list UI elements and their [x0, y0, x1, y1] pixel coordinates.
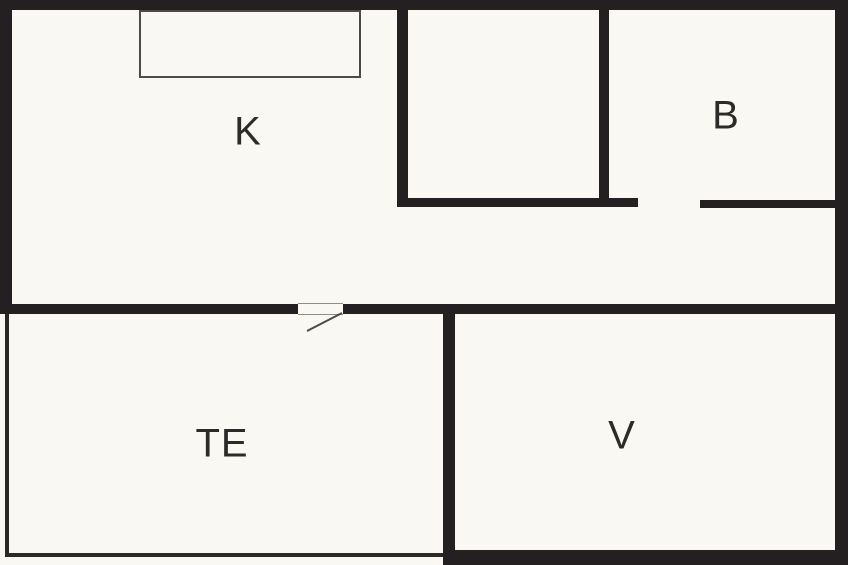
wall-te-v-divider	[443, 304, 455, 565]
wall-outer-left	[0, 0, 12, 314]
kitchen-counter	[139, 10, 361, 78]
door-swing-icon	[298, 308, 350, 338]
wall-midroom-right	[599, 10, 609, 207]
wall-terrace-left	[5, 314, 9, 557]
room-label-b: B	[712, 94, 740, 139]
room-label-k: K	[234, 110, 262, 155]
wall-middle-left-segment	[0, 304, 298, 314]
wall-outer-top	[0, 0, 848, 10]
wall-room-b-bottom	[700, 200, 835, 208]
wall-middle-right-segment	[343, 304, 848, 314]
wall-room-v-bottom	[443, 550, 848, 565]
wall-terrace-bottom	[5, 553, 449, 557]
wall-midroom-bottom	[397, 198, 638, 207]
room-label-te: TE	[195, 422, 248, 467]
wall-midroom-left	[397, 10, 408, 207]
room-label-v: V	[608, 414, 636, 459]
floor-plan: K B TE V	[0, 0, 848, 565]
wall-outer-right	[835, 0, 848, 565]
